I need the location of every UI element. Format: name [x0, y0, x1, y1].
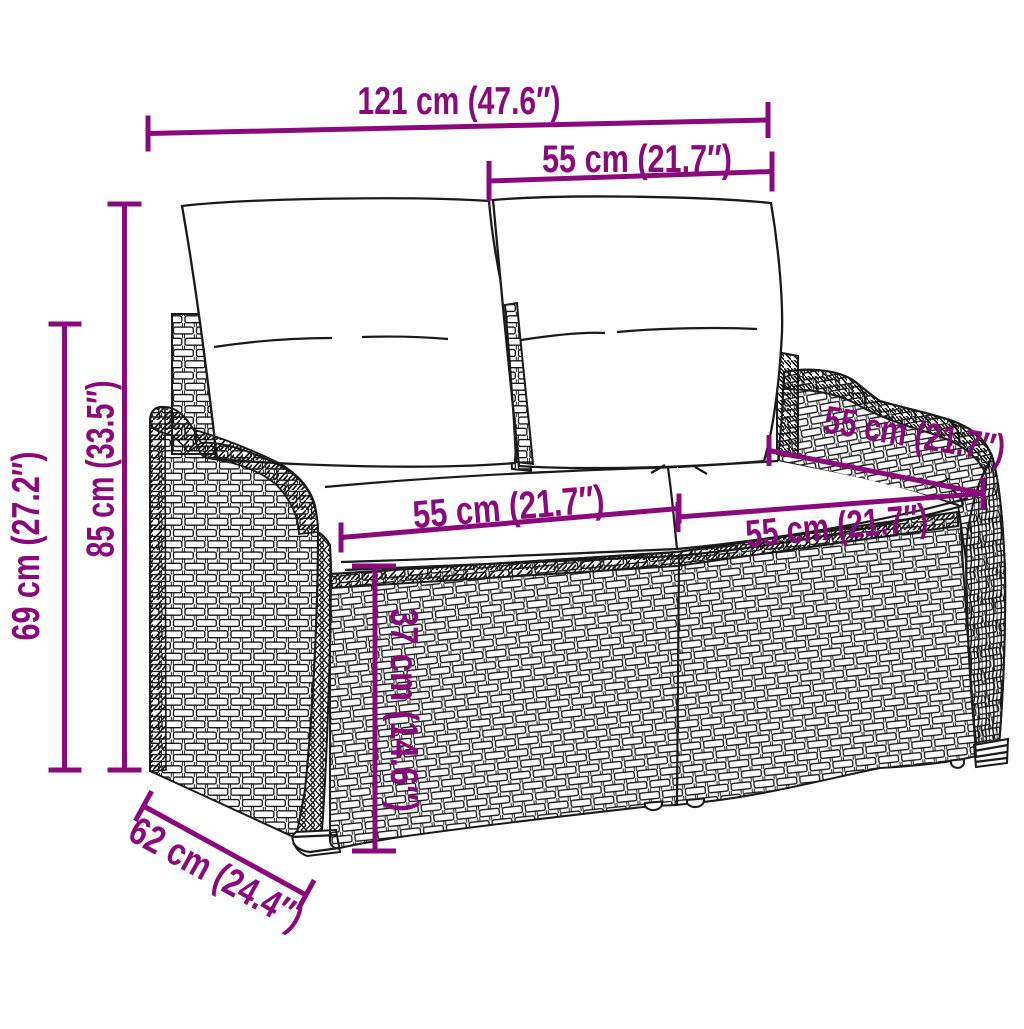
svg-text:69 cm (27.2″): 69 cm (27.2″) [5, 452, 48, 641]
svg-text:85 cm (33.5″): 85 cm (33.5″) [80, 381, 123, 558]
svg-text:121 cm (47.6″): 121 cm (47.6″) [358, 80, 561, 123]
svg-text:55 cm (21.7″): 55 cm (21.7″) [542, 138, 732, 181]
svg-text:37 cm (14.6″): 37 cm (14.6″) [382, 608, 425, 812]
